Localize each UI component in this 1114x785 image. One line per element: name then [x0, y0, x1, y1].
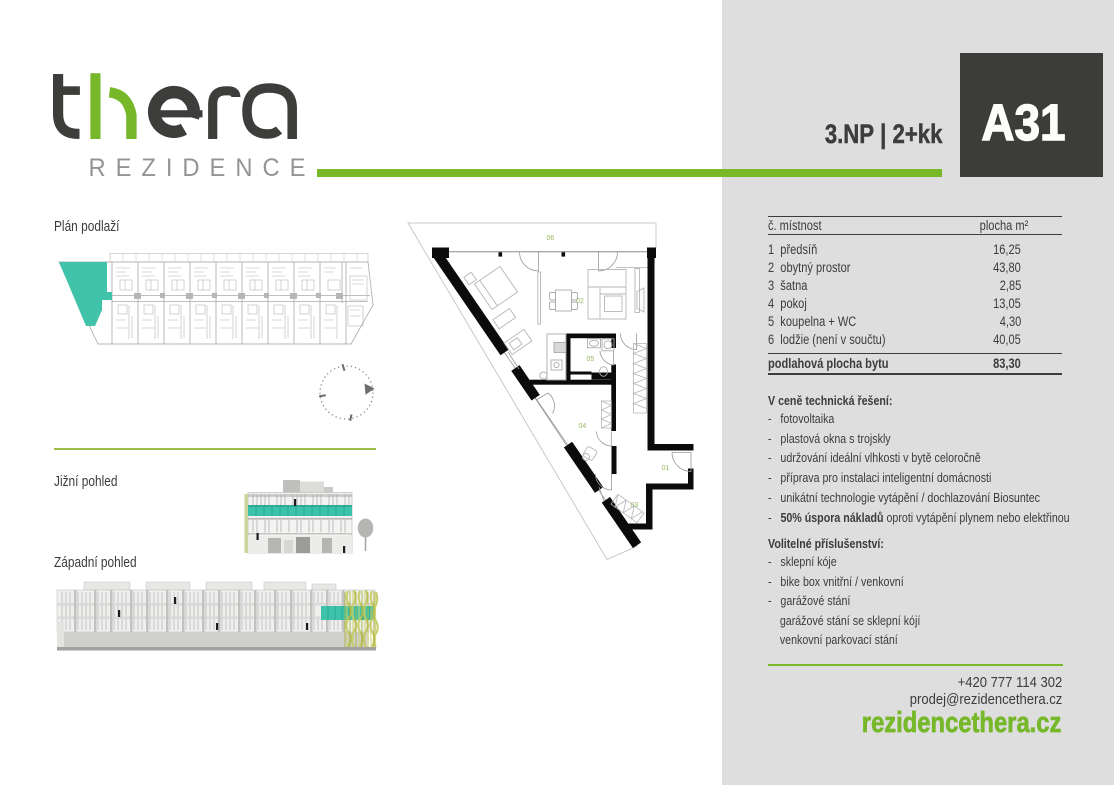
svg-text:03: 03 — [631, 502, 639, 509]
svg-text:04: 04 — [579, 423, 587, 430]
svg-text:05: 05 — [587, 356, 595, 363]
svg-text:01: 01 — [662, 465, 670, 472]
svg-text:REZIDENCE: REZIDENCE — [88, 154, 310, 182]
svg-text:02: 02 — [576, 298, 584, 305]
svg-text:06: 06 — [547, 235, 555, 242]
